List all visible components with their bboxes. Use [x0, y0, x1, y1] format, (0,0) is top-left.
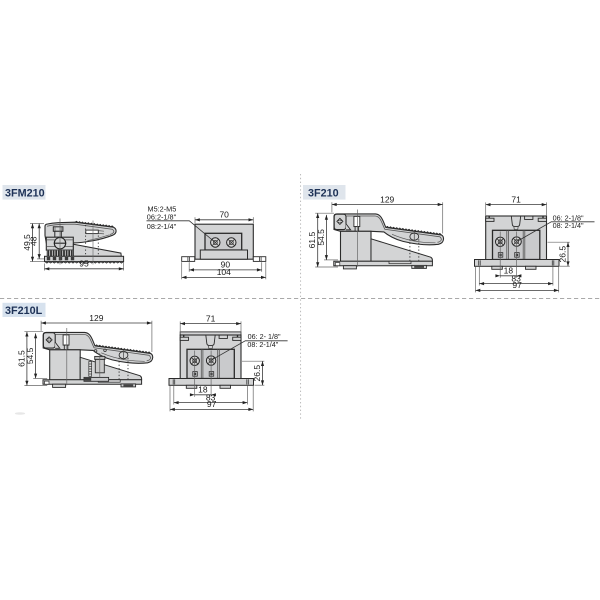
svg-text:06:2-1/8": 06:2-1/8" [147, 212, 177, 221]
svg-text:104: 104 [217, 267, 231, 277]
svg-text:70: 70 [219, 210, 229, 220]
svg-text:08:2-1/4": 08:2-1/4" [147, 222, 177, 231]
svg-text:48: 48 [29, 236, 39, 246]
svg-text:3FM210: 3FM210 [5, 187, 45, 199]
svg-text:3F210L: 3F210L [5, 305, 43, 317]
svg-text:3F210: 3F210 [308, 187, 339, 199]
svg-text:95: 95 [79, 259, 89, 269]
